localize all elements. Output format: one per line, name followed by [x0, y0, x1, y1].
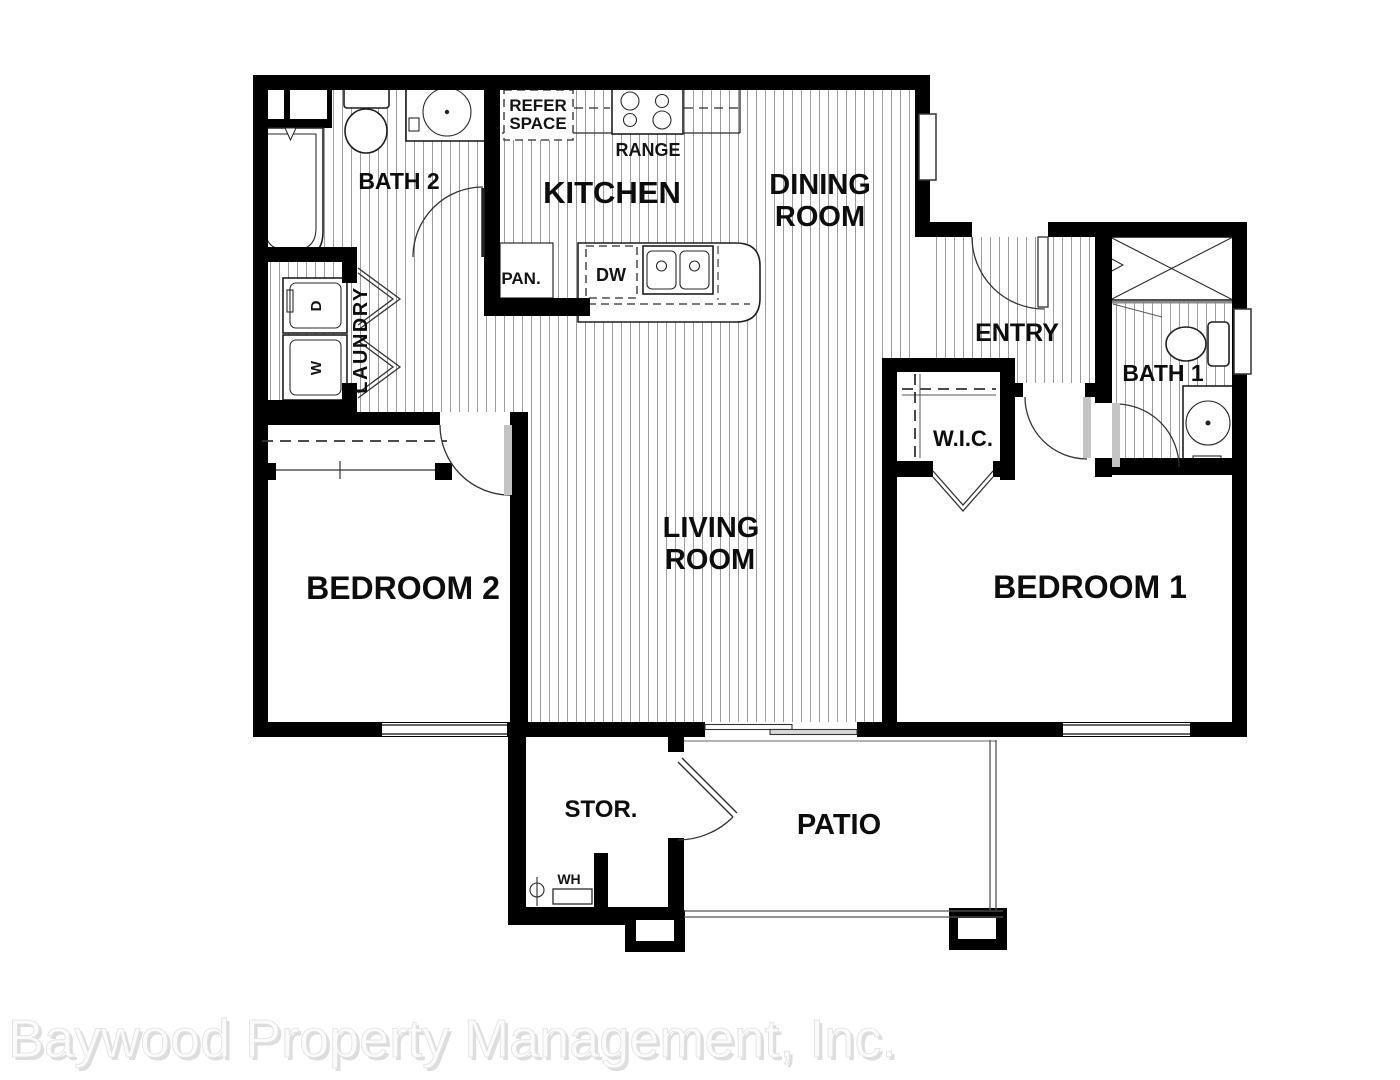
- wall-bedroom1-west: [882, 358, 897, 737]
- label-bath1: BATH 1: [1122, 360, 1204, 386]
- label-wic: W.I.C.: [933, 426, 993, 451]
- tub-niche-right: [290, 87, 327, 119]
- label-dishwasher: DW: [596, 265, 626, 285]
- slider-panel-fixed: [705, 725, 792, 730]
- jamb-bed2-closet-right: [435, 463, 452, 480]
- label-bedroom2: BEDROOM 2: [306, 570, 500, 606]
- wall-right: [1232, 222, 1247, 737]
- label-range: RANGE: [615, 140, 680, 160]
- watermark-text: Baywood Property Management, Inc.: [8, 1009, 896, 1069]
- wall-storage-east-bottom: [668, 838, 684, 912]
- jamb-bed2-closet-left: [253, 463, 276, 480]
- bath1-door-leaf: [1112, 403, 1120, 467]
- label-living-2: ROOM: [665, 544, 755, 576]
- bath1-toilet-tank: [1208, 322, 1229, 366]
- label-patio: PATIO: [797, 809, 881, 841]
- label-entry: ENTRY: [975, 319, 1059, 347]
- label-pantry: PAN.: [501, 269, 540, 288]
- wall-kitchen-west: [484, 85, 500, 316]
- wall-front-left: [915, 222, 972, 237]
- bath2-sink-drain: [445, 110, 449, 114]
- label-refer-1: REFER: [509, 96, 567, 115]
- wall-storage-east-top: [668, 737, 684, 752]
- dining-window: [919, 114, 936, 180]
- wall-living-west: [510, 412, 528, 737]
- bedroom1-door-leaf: [1083, 397, 1091, 458]
- water-heater-box: [553, 889, 592, 904]
- jamb-wic-right: [993, 461, 1015, 477]
- wall-storage-west: [508, 722, 526, 925]
- bath1-toilet-bowl: [1166, 327, 1206, 361]
- bedroom2-door-leaf: [504, 425, 512, 495]
- label-washer: W: [308, 360, 325, 375]
- label-kitchen: KITCHEN: [543, 175, 681, 210]
- label-storage: STOR.: [565, 796, 638, 823]
- watermark: Baywood Property Management, Inc. Baywoo…: [8, 1009, 899, 1072]
- floorplan: BATH 2 KITCHEN DINING ROOM ENTRY BATH 1 …: [0, 0, 1400, 1080]
- label-bath2: BATH 2: [358, 168, 439, 194]
- wall-top: [253, 75, 930, 90]
- wall-wic-north: [887, 358, 1015, 372]
- label-water-heater: WH: [557, 871, 580, 887]
- wall-bedroom2-north: [253, 412, 440, 425]
- wall-bath2-laundry: [253, 247, 357, 262]
- slider-panel-moving: [770, 730, 857, 735]
- bedroom1-floor-upper: [897, 397, 1098, 722]
- wall-pantry-south: [484, 298, 590, 316]
- label-dryer: D: [308, 300, 325, 311]
- wall-wh-stub: [594, 853, 608, 912]
- patio-post-left-notch: [636, 920, 674, 941]
- wall-bedroom1-north-left: [1000, 383, 1023, 397]
- entry-door-leaf: [1038, 237, 1048, 307]
- wall-living-south-left: [528, 722, 705, 737]
- label-living-1: LIVING: [663, 512, 760, 544]
- label-dining-1: DINING: [769, 169, 871, 201]
- jamb-wic-left: [887, 461, 933, 477]
- bath1-window: [1234, 309, 1251, 374]
- kitchen-sink: [643, 246, 713, 294]
- wall-bath1-west-upper: [1095, 222, 1112, 403]
- label-refer-2: SPACE: [509, 114, 566, 133]
- label-laundry: LAUNDRY: [350, 286, 372, 394]
- bath1-sink-drain: [1206, 421, 1211, 426]
- label-bedroom1: BEDROOM 1: [993, 569, 1187, 605]
- wall-front-right: [1048, 222, 1247, 237]
- bath2-toilet-bowl: [345, 109, 387, 153]
- range: [612, 87, 683, 134]
- label-dining-2: ROOM: [775, 201, 865, 233]
- jamb-laundry-top: [342, 250, 357, 283]
- patio-post-right-notch: [958, 918, 996, 939]
